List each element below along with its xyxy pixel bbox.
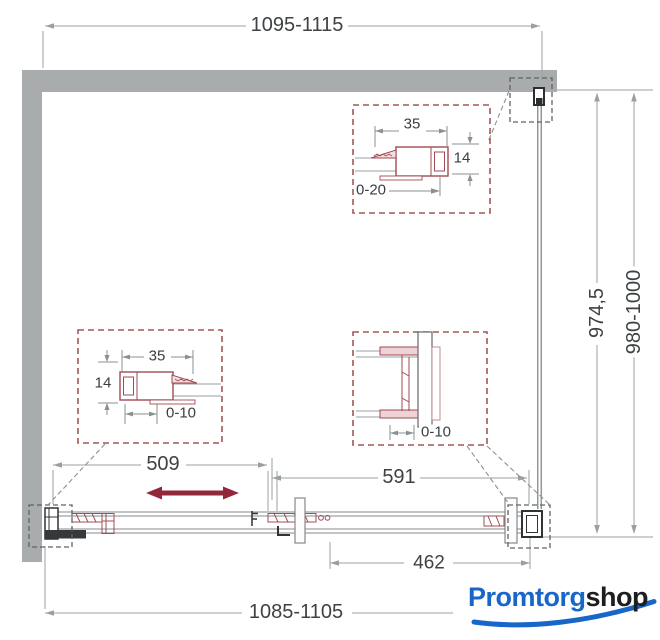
technical-drawing (0, 0, 660, 640)
dim-total-height: 980-1000 (622, 267, 646, 358)
detail-left-range: 0-10 (164, 406, 198, 421)
dim-bottom-width: 1085-1105 (246, 602, 346, 622)
dim-door-travel: 509 (143, 454, 182, 474)
top-wall (22, 70, 557, 92)
dimension-lines (43, 26, 653, 613)
dim-overlap: 462 (410, 554, 448, 573)
promtorg-logo[interactable]: Promtorgshop (468, 584, 660, 634)
left-wall-profile-section (45, 508, 86, 539)
dimension-arrows (45, 23, 637, 616)
detail-left-width: 35 (147, 349, 168, 364)
dim-glass-height: 974,5 (585, 285, 609, 341)
detail-top-width: 35 (402, 117, 423, 132)
slide-direction-arrow (146, 487, 239, 500)
detail-left-height: 14 (93, 376, 114, 391)
dim-fixed-panel: 591 (379, 467, 418, 487)
logo-text-primary: Promtorg (468, 582, 586, 612)
drawing-canvas: 1095-1115 1085-1105 509 591 462 974,5 98… (0, 0, 660, 640)
left-wall (22, 70, 42, 562)
right-end-clamp (522, 511, 542, 537)
detail-top-range: 0-20 (354, 183, 388, 198)
detail-top-height: 14 (452, 151, 473, 166)
left-handle (295, 498, 305, 543)
dim-top-width: 1095-1115 (248, 15, 347, 35)
detail-right-range: 0-10 (419, 425, 453, 440)
logo-text: Promtorgshop (468, 584, 648, 611)
logo-text-secondary: shop (586, 582, 649, 612)
fixed-glass-panel (534, 88, 544, 509)
